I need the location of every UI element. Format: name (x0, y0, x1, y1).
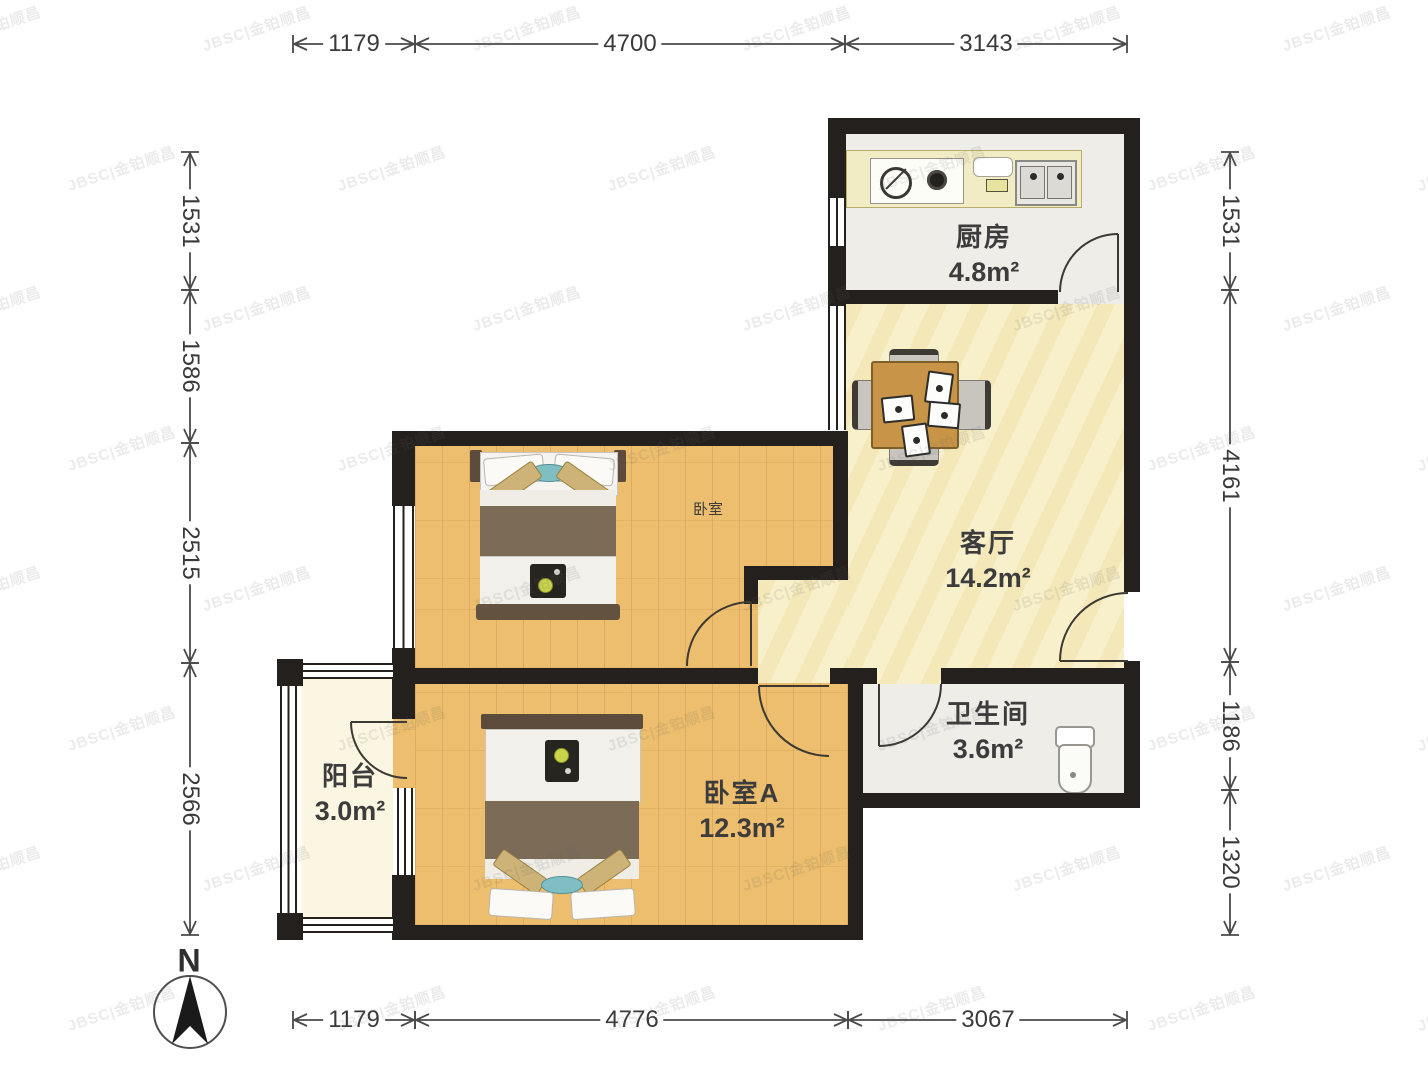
dimension-label: 1320 (1216, 830, 1244, 893)
dimension-label: 1531 (1216, 189, 1244, 252)
floor-plan: 厨房4.8m² 客厅14.2m² 卧室 卧室A12.3m² 卫生间3.6m² 阳… (0, 0, 1428, 1080)
kitchen-label: 厨房4.8m² (904, 221, 1064, 290)
dimension-label: 1179 (323, 30, 385, 58)
dimension-label: 1531 (176, 189, 204, 252)
compass-north-label: N (177, 943, 200, 980)
doors-and-dimensions-layer (0, 0, 1428, 1080)
door-swing-kitchen (1060, 234, 1118, 292)
dimension-label: 3143 (954, 30, 1017, 58)
dimension-label: 1586 (176, 334, 204, 397)
bedroom-a-label: 卧室A12.3m² (662, 777, 822, 846)
dimension-label: 3067 (956, 1006, 1019, 1034)
door-swing-bedroom (687, 602, 751, 666)
dimension-label: 4700 (598, 30, 661, 58)
bedroom-label: 卧室 (668, 498, 748, 519)
north-arrow-icon (172, 976, 208, 1044)
dimension-label: 2566 (176, 767, 204, 830)
compass (154, 976, 226, 1048)
dimension-label: 1179 (323, 1006, 385, 1034)
door-swing-bedroom-a (759, 686, 829, 756)
living-room-label: 客厅14.2m² (908, 527, 1068, 596)
dimension-label: 4161 (1216, 444, 1244, 507)
dimension-label: 2515 (176, 521, 204, 584)
door-swing-entry (1060, 593, 1128, 661)
bathroom-label: 卫生间3.6m² (908, 698, 1068, 767)
dimension-label: 4776 (600, 1006, 663, 1034)
dimension-label: 1186 (1216, 695, 1244, 757)
balcony-label: 阳台3.0m² (290, 760, 410, 829)
